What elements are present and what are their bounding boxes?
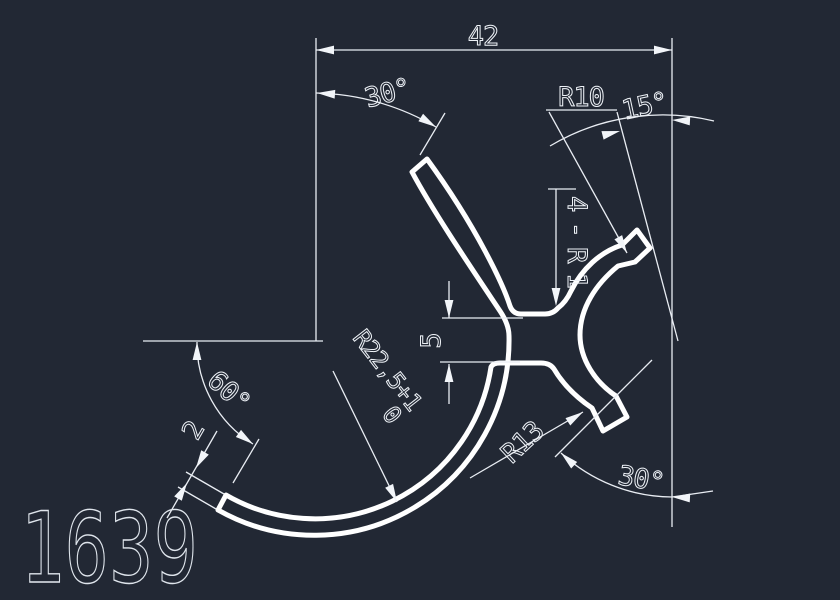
dim-fillet-4r1-label: 4-R1: [561, 196, 592, 288]
arrow-15-right: [672, 116, 690, 126]
arrow-30bottom-right: [672, 493, 690, 503]
dim-radius-r13-label: R13: [495, 416, 550, 470]
part-number-label: 1639: [20, 492, 198, 600]
arrow-r13: [566, 408, 586, 425]
dim-radius-r225-tolerance: 0: [376, 401, 406, 429]
dim-thickness-2-label: 2: [176, 416, 210, 445]
ext-30-bottom-slant: [555, 360, 652, 457]
arrow-30bottom-left: [558, 450, 577, 469]
arrow-30top-left: [317, 89, 336, 99]
ext-15-slant: [617, 112, 678, 341]
dim-angle-15-label: 15°: [619, 87, 670, 127]
arrow-60-top: [193, 342, 202, 360]
arrow-42-right: [654, 46, 672, 55]
arrow-15-left: [601, 127, 621, 140]
arrow-5-bottom: [445, 364, 454, 382]
arrow-5-top: [445, 300, 454, 318]
dim-angle-top-left-label: 30°: [361, 73, 413, 115]
arrow-60-bottom: [236, 430, 256, 448]
arrow-42-left: [316, 46, 334, 55]
ext-lower-cut: [233, 439, 259, 483]
cad-viewport[interactable]: 42 30° R10 15° 4-R1 5 R22,5+1 0 60° 2 R1…: [0, 0, 840, 600]
cad-drawing: 42 30° R10 15° 4-R1 5 R22,5+1 0 60° 2 R1…: [0, 0, 840, 600]
dim-width-label: 42: [468, 21, 499, 52]
arrow-2-inner: [192, 450, 209, 470]
dim-angle-bottom-right-label: 30°: [616, 460, 666, 498]
dim-angle-60-label: 60°: [201, 365, 256, 419]
dimension-arrows: [174, 46, 690, 504]
dim-web-5-label: 5: [416, 333, 447, 348]
dim-radius-r10-label: R10: [558, 82, 604, 113]
dim-2-ext-inner: [186, 472, 224, 494]
arrow-4r1: [552, 288, 561, 306]
